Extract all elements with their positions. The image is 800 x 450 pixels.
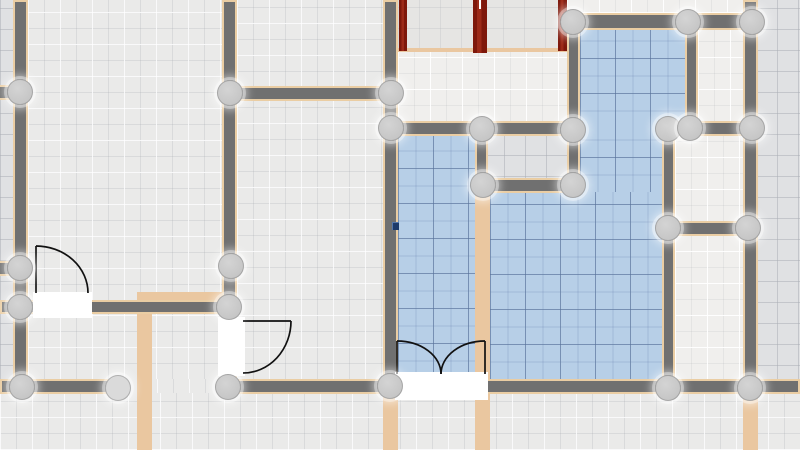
wall-handle[interactable] — [7, 79, 33, 105]
brick-wall[interactable] — [473, 0, 487, 53]
wall-handle[interactable] — [739, 115, 765, 141]
wall-handle[interactable] — [470, 172, 496, 198]
small-object-marker[interactable] — [392, 222, 399, 230]
wall-handle[interactable] — [677, 115, 703, 141]
wall-handle[interactable] — [655, 215, 681, 241]
wall-handle[interactable] — [560, 117, 586, 143]
wall-handle[interactable] — [217, 80, 243, 106]
door[interactable] — [395, 372, 488, 400]
wall-handle[interactable] — [560, 9, 586, 35]
wall[interactable] — [383, 0, 398, 394]
room-floor[interactable] — [567, 0, 757, 13]
wall-handle[interactable] — [215, 374, 241, 400]
door[interactable] — [218, 317, 245, 376]
wall-handle[interactable] — [218, 253, 244, 279]
floor-plan-canvas — [0, 0, 800, 450]
room-floor[interactable] — [698, 30, 743, 122]
wall[interactable] — [237, 379, 800, 394]
wall-handle[interactable] — [377, 373, 403, 399]
room-floor[interactable] — [675, 136, 743, 222]
wall[interactable] — [567, 25, 580, 193]
partition-wall[interactable] — [383, 396, 398, 450]
wall-handle[interactable] — [7, 294, 33, 320]
partition-wall[interactable] — [475, 192, 490, 450]
wall-handle[interactable] — [737, 375, 763, 401]
wall-handle[interactable] — [560, 172, 586, 198]
door[interactable] — [33, 292, 92, 318]
room-floor[interactable] — [398, 50, 567, 122]
wall-handle[interactable] — [105, 375, 131, 401]
room-floor[interactable] — [237, 0, 383, 88]
wall-handle[interactable] — [378, 115, 404, 141]
room-floor[interactable] — [28, 313, 222, 380]
room-floor[interactable] — [580, 128, 662, 193]
room-floor[interactable] — [580, 30, 685, 129]
wall-handle[interactable] — [739, 9, 765, 35]
wall-handle[interactable] — [675, 9, 701, 35]
wall[interactable] — [224, 86, 398, 101]
room-floor[interactable] — [0, 393, 800, 450]
wall[interactable] — [743, 0, 758, 396]
wall-handle[interactable] — [216, 294, 242, 320]
wall-handle[interactable] — [655, 375, 681, 401]
wall-handle[interactable] — [9, 374, 35, 400]
wall-handle[interactable] — [469, 116, 495, 142]
wall[interactable] — [662, 121, 675, 396]
wall-handle[interactable] — [735, 215, 761, 241]
room-floor[interactable] — [237, 100, 383, 380]
room-floor[interactable] — [490, 192, 662, 380]
window-tick — [479, 0, 481, 9]
room-floor[interactable] — [28, 0, 222, 301]
partition-wall[interactable] — [743, 396, 758, 450]
room-floor[interactable] — [398, 136, 475, 379]
wall[interactable] — [13, 0, 28, 393]
brick-wall[interactable] — [399, 0, 407, 51]
wall-handle[interactable] — [7, 255, 33, 281]
wall[interactable] — [567, 13, 757, 30]
partition-wall[interactable] — [137, 292, 152, 450]
room-floor[interactable] — [675, 235, 743, 380]
wall-handle[interactable] — [378, 80, 404, 106]
